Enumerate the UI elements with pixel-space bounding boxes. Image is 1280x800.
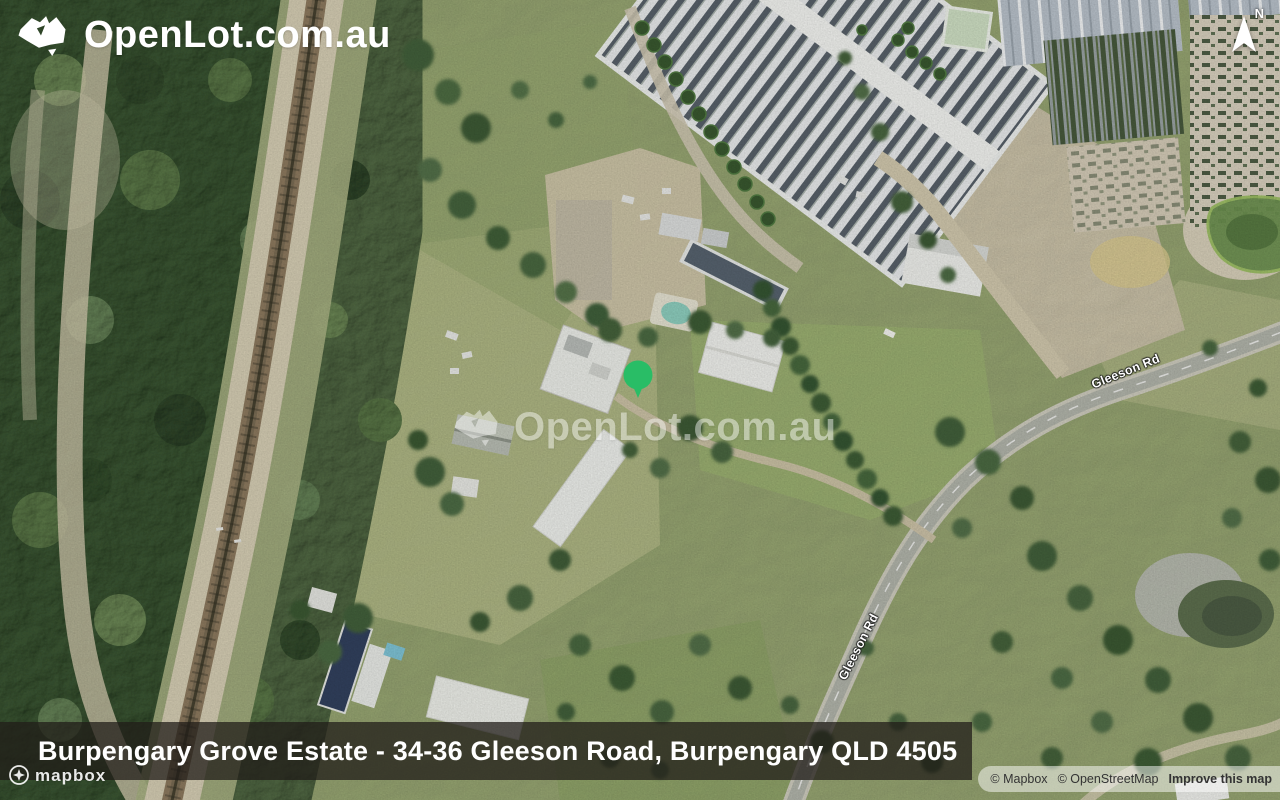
property-address-text: Burpengary Grove Estate - 34-36 Gleeson … — [0, 736, 957, 767]
openlot-logo: OpenLot.com.au — [16, 12, 391, 58]
property-marker-pin[interactable] — [621, 360, 655, 402]
improve-this-map-link[interactable]: Improve this map — [1169, 772, 1273, 786]
mapbox-icon — [8, 764, 30, 786]
property-address-banner: Burpengary Grove Estate - 34-36 Gleeson … — [0, 722, 972, 780]
map-attribution: © Mapbox © OpenStreetMap Improve this ma… — [978, 766, 1280, 792]
australia-logo-icon — [16, 12, 68, 58]
mapbox-wordmark: mapbox — [35, 767, 106, 784]
marker-head — [624, 361, 653, 390]
attribution-mapbox-link[interactable]: © Mapbox — [990, 772, 1047, 786]
attribution-osm-link[interactable]: © OpenStreetMap — [1058, 772, 1159, 786]
compass-north-label: N — [1255, 6, 1264, 21]
compass-control[interactable]: N — [1216, 4, 1272, 66]
mapbox-logo-link[interactable]: mapbox — [8, 764, 106, 786]
map-screenshot: OpenLot.com.au N OpenLot.com.au Gleeson … — [0, 0, 1280, 800]
openlot-logo-text: OpenLot.com.au — [84, 16, 391, 54]
